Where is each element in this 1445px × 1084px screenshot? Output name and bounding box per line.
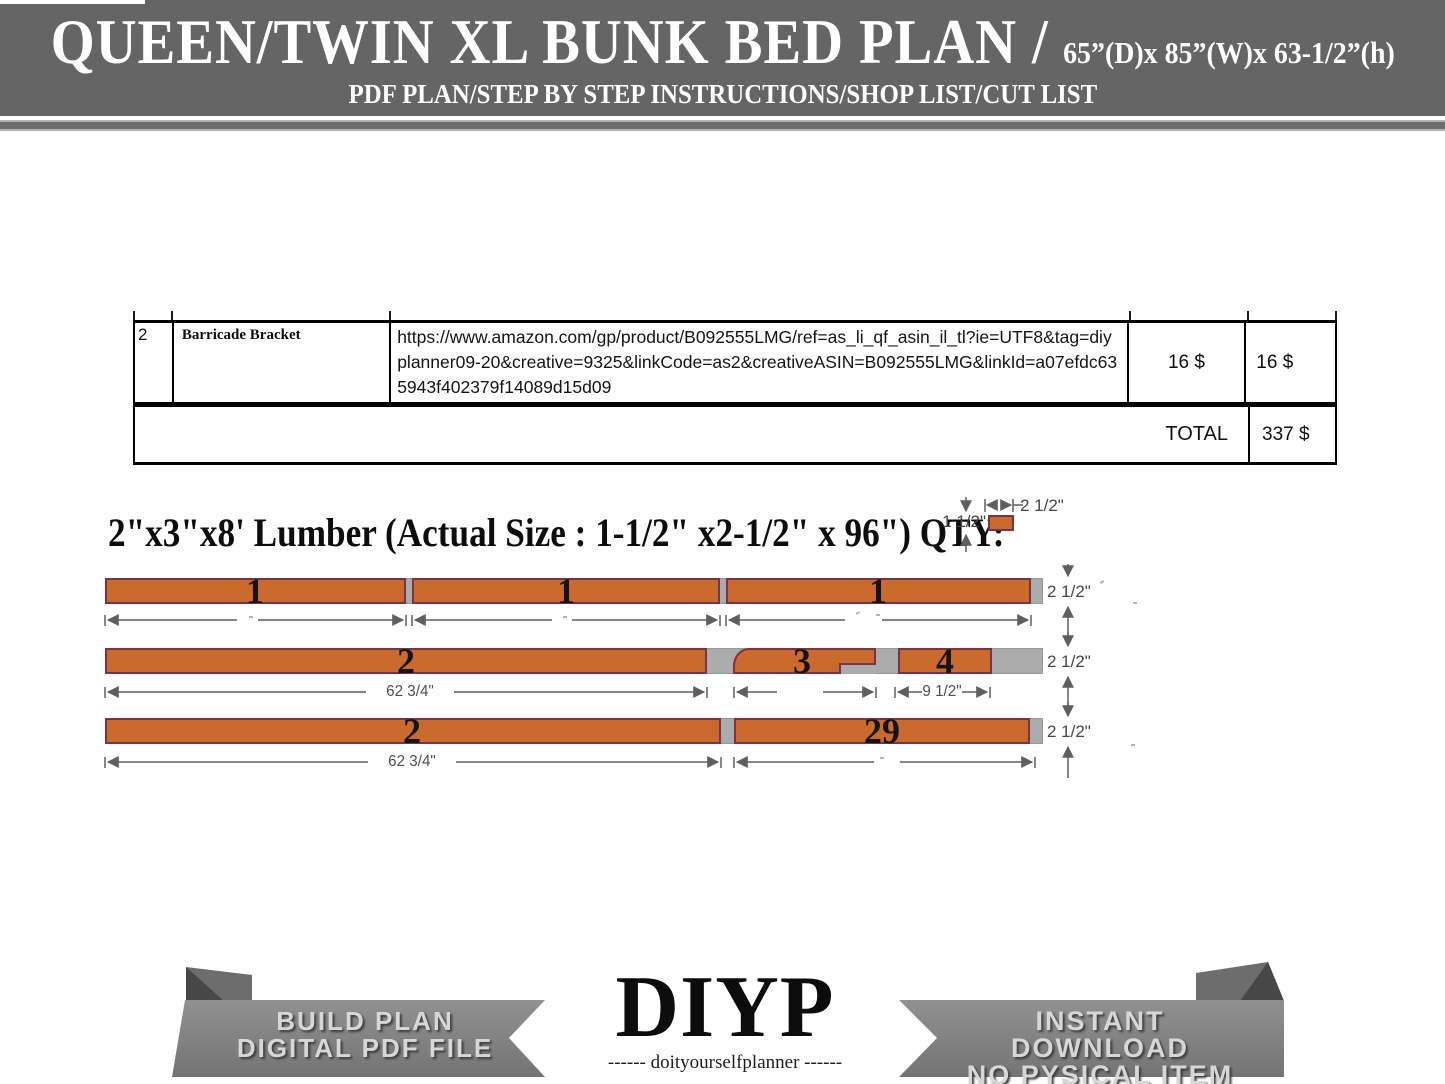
item-link[interactable]: https://www.amazon.com/gp/product/B09255…	[391, 323, 1128, 402]
piece-qty-label: 1	[546, 569, 586, 613]
diyp-logo: DIYP ------ doityourselfplanner ------	[597, 966, 853, 1074]
piece-qty-label: 4	[925, 639, 965, 683]
dim-label: 9 1/2"	[914, 683, 971, 701]
total-label: TOTAL	[135, 407, 1250, 462]
legend-thickness-label: 1 1/2"	[938, 512, 986, 532]
faint-mark	[856, 611, 860, 615]
pdf-plan-page: QUEEN/TWIN XL BUNK BED PLAN / 65”(D)x 85…	[0, 0, 1445, 1084]
ribbon-left-line2: DIGITAL PDF FILE	[215, 1035, 515, 1062]
ribbon-right-line2: NO PYSICAL ITEM	[945, 1062, 1255, 1084]
faint-mark	[249, 616, 253, 618]
lumber-heading: 2"x3"x8' Lumber (Actual Size : 1-1/2" x2…	[108, 509, 1005, 556]
faint-mark	[563, 616, 567, 618]
logo-tagline: ------ doityourselfplanner ------	[597, 1052, 853, 1074]
ribbon-right-text: INSTANT DOWNLOAD NO PYSICAL ITEM	[945, 1008, 1255, 1084]
piece-notch	[839, 663, 876, 674]
board-height-label: 2 1/2"	[1047, 652, 1091, 672]
total-value: 337 $	[1250, 407, 1335, 462]
faint-mark	[880, 757, 884, 759]
divider-stripe	[0, 120, 1445, 131]
faint-mark	[876, 614, 880, 616]
overall-size-label: 65”(D)x 85”(W)x 63-1/2”(h)	[1063, 35, 1395, 71]
item-name-cell: Barricade Bracket	[174, 323, 391, 402]
board-height-label: 2 1/2"	[1047, 722, 1091, 742]
header-banner: QUEEN/TWIN XL BUNK BED PLAN / 65”(D)x 85…	[0, 0, 1445, 116]
page-title: QUEEN/TWIN XL BUNK BED PLAN /	[50, 6, 1048, 79]
faint-mark	[1133, 602, 1137, 604]
piece-qty-label: 2	[386, 639, 426, 683]
shop-list-table: 2 Barricade Bracket https://www.amazon.c…	[133, 311, 1337, 465]
unit-price-cell: 16 $	[1129, 323, 1247, 402]
piece-qty-label: 1	[858, 569, 898, 613]
dim-label: 62 3/4"	[370, 683, 450, 701]
board-height-label: 2 1/2"	[1047, 582, 1091, 602]
row-index-cell: 2	[135, 323, 174, 402]
legend-width-label: 2 1/2"	[1020, 496, 1064, 516]
piece-qty-label: 3	[782, 639, 822, 683]
table-row: 2 Barricade Bracket https://www.amazon.c…	[133, 320, 1337, 404]
lumber-cross-section-swatch	[988, 515, 1014, 531]
ribbon-right-line1: INSTANT DOWNLOAD	[945, 1008, 1255, 1062]
row-total-cell: 16 $	[1246, 323, 1335, 402]
table-total-row: TOTAL 337 $	[133, 404, 1337, 465]
ribbon-left-line1: BUILD PLAN	[215, 1008, 515, 1035]
piece-qty-label: 1	[235, 569, 275, 613]
header-subtitle: PDF PLAN/STEP BY STEP INSTRUCTIONS/SHOP …	[348, 79, 1097, 110]
piece-qty-label: 29	[856, 709, 908, 753]
dim-label: 62 3/4"	[372, 753, 452, 771]
corner-sliver	[0, 0, 145, 4]
faint-mark	[1131, 744, 1135, 746]
ribbon-left-text: BUILD PLAN DIGITAL PDF FILE	[215, 1008, 515, 1062]
faint-mark	[1100, 580, 1104, 584]
logo-text: DIYP	[597, 966, 853, 1050]
piece-qty-label: 2	[392, 709, 432, 753]
